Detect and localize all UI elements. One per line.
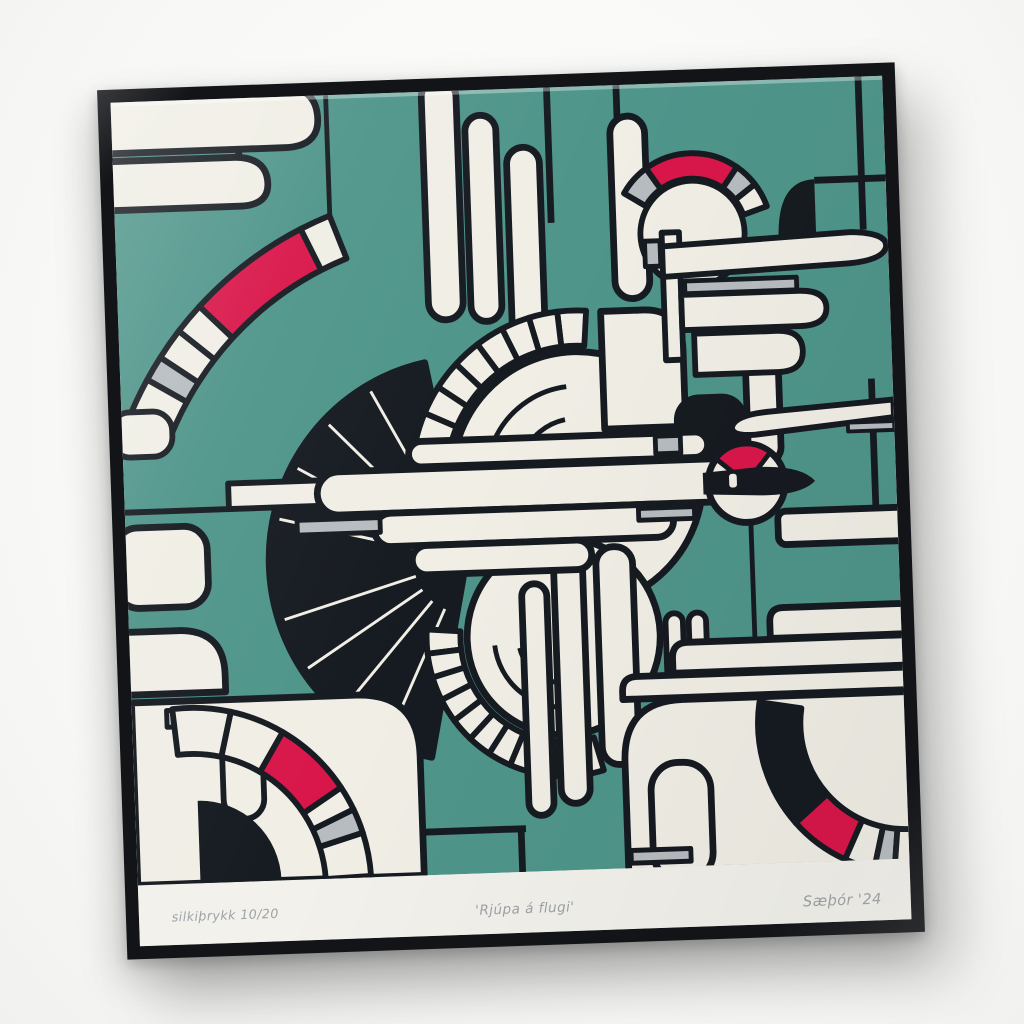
- art-print: silkiþrykk 10/20 'Rjúpa á flugi' Sæþór '…: [111, 76, 912, 946]
- picture-frame: silkiþrykk 10/20 'Rjúpa á flugi' Sæþór '…: [97, 62, 925, 959]
- photo-backdrop: silkiþrykk 10/20 'Rjúpa á flugi' Sæþór '…: [0, 0, 1024, 1024]
- arc-segment: [172, 706, 232, 758]
- chin-bar: [778, 507, 910, 545]
- arc-end-stub: [111, 411, 174, 458]
- eye: [729, 474, 737, 488]
- signature-inscription: Sæþór '24: [803, 891, 882, 911]
- artwork-image-area: [111, 76, 912, 900]
- ptarmigan-artwork-svg: silkiþrykk 10/20 'Rjúpa á flugi' Sæþór '…: [111, 76, 912, 946]
- left-panel-lower: [117, 629, 225, 695]
- wing-blade-3: [694, 330, 803, 375]
- left-panel-upper: [114, 526, 209, 610]
- bottom-left-block: [131, 693, 424, 886]
- wing-blade-2: [681, 290, 827, 330]
- title-inscription: 'Rjúpa á flugi': [475, 899, 575, 919]
